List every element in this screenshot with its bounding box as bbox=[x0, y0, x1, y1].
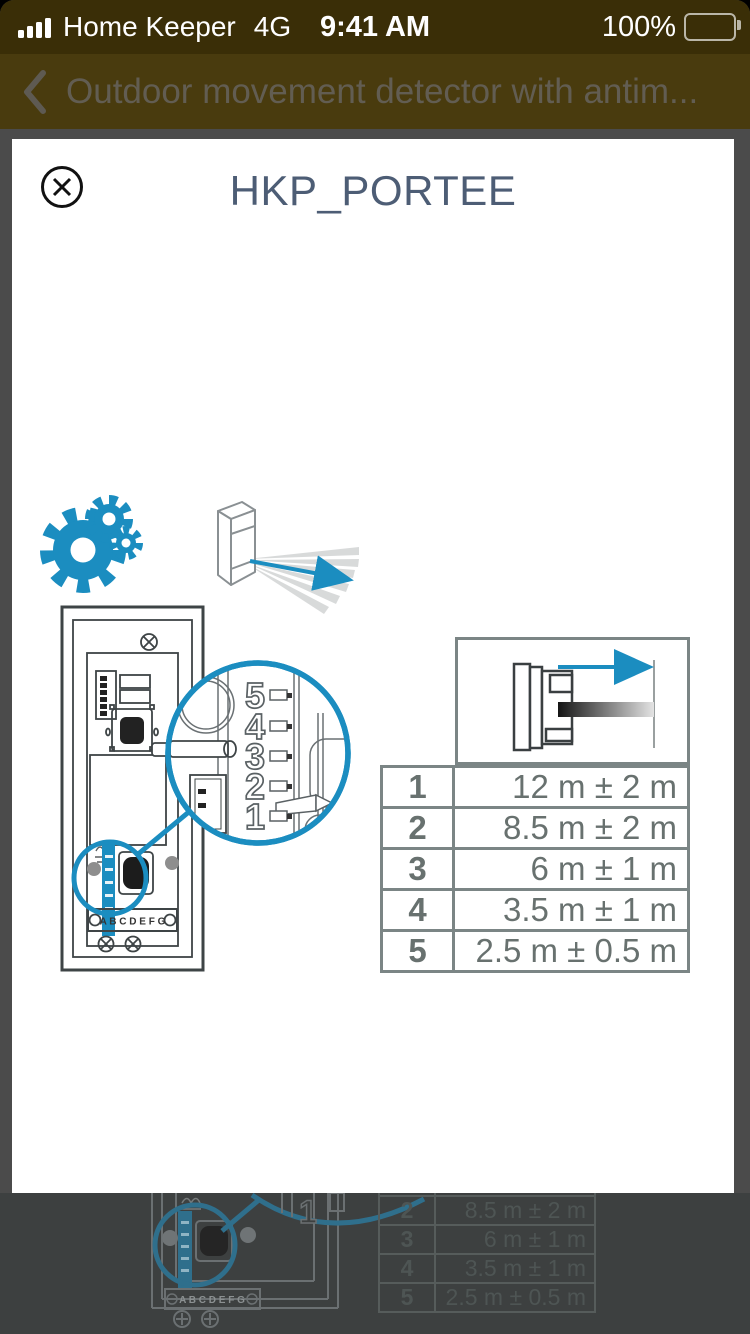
nav-bar: Outdoor movement detector with antim... bbox=[0, 54, 750, 129]
range-table-row: 28.5 m ± 2 m bbox=[379, 1196, 595, 1225]
range-table-row: 52.5 m ± 0.5 m bbox=[382, 931, 689, 972]
range-table-row: 43.5 m ± 1 m bbox=[382, 890, 689, 931]
range-table-row: 112 m ± 2 m bbox=[382, 767, 689, 808]
range-table-row: 36 m ± 1 m bbox=[379, 1225, 595, 1254]
detection-range-cell: 3.5 m ± 1 m bbox=[454, 890, 689, 931]
terminal-labels: A B C D E F G bbox=[100, 917, 166, 928]
switch-position-cell: 3 bbox=[382, 849, 454, 890]
detection-range-cell: 8.5 m ± 2 m bbox=[435, 1196, 595, 1225]
switch-position-cell: 2 bbox=[379, 1196, 435, 1225]
detector-beam-illustration bbox=[218, 502, 359, 614]
detection-range-cell: 12 m ± 2 m bbox=[454, 767, 689, 808]
range-table-row: 36 m ± 1 m bbox=[382, 849, 689, 890]
phone-screen: Home Keeper 4G 9:41 AM 100% Outdoor move… bbox=[0, 0, 750, 1334]
switch-position-cell: 5 bbox=[379, 1283, 435, 1312]
modal-title: HKP_PORTEE bbox=[12, 167, 734, 215]
nav-title: Outdoor movement detector with antim... bbox=[66, 72, 698, 112]
range-table-row: 43.5 m ± 1 m bbox=[379, 1254, 595, 1283]
detection-range-cell: 2.5 m ± 0.5 m bbox=[454, 931, 689, 972]
battery-percent-label: 100% bbox=[602, 11, 676, 44]
detection-range-cell: 2.5 m ± 0.5 m bbox=[435, 1283, 595, 1312]
range-table-row: 52.5 m ± 0.5 m bbox=[379, 1283, 595, 1312]
switch-position-cell: 2 bbox=[382, 808, 454, 849]
portee-setting-figure: A B C D E F G bbox=[12, 439, 734, 999]
range-diagram-box bbox=[455, 637, 690, 765]
dimmed-range-table: 112 m ± 2 m28.5 m ± 2 m36 m ± 1 m43.5 m … bbox=[378, 1193, 596, 1313]
battery-icon bbox=[684, 13, 736, 41]
magnifier-circle: 5 4 3 2 1 bbox=[168, 663, 380, 845]
dimmed-switch-scale-label: 1 bbox=[299, 1194, 317, 1230]
detection-range-cell: 6 m ± 1 m bbox=[435, 1225, 595, 1254]
svg-text:1: 1 bbox=[245, 796, 265, 837]
detection-range-cell: 6 m ± 1 m bbox=[454, 849, 689, 890]
back-chevron-icon[interactable] bbox=[22, 69, 48, 115]
switch-position-cell: 4 bbox=[379, 1254, 435, 1283]
dimmed-terminal-labels: A B C D E F G bbox=[179, 1295, 245, 1306]
switch-position-cell: 1 bbox=[382, 767, 454, 808]
device-setting-modal: HKP_PORTEE bbox=[12, 139, 734, 1193]
range-table-row: 28.5 m ± 2 m bbox=[382, 808, 689, 849]
switch-position-cell: 4 bbox=[382, 890, 454, 931]
switch-position-cell: 3 bbox=[379, 1225, 435, 1254]
dimmed-device-diagram: 1 A B C D E F G bbox=[0, 1193, 750, 1334]
beam-gradient-bar bbox=[558, 702, 654, 717]
settings-gears-icon bbox=[47, 500, 139, 586]
detection-range-cell: 8.5 m ± 2 m bbox=[454, 808, 689, 849]
status-bar: Home Keeper 4G 9:41 AM 100% bbox=[0, 0, 750, 54]
switch-scale-labels: 5 4 3 2 1 bbox=[245, 675, 265, 837]
switch-position-cell: 5 bbox=[382, 931, 454, 972]
detection-range-cell: 3.5 m ± 1 m bbox=[435, 1254, 595, 1283]
dimmed-background-page: 1 A B C D E F G 112 m ± 2 m28.5 m ± 2 m3… bbox=[0, 1193, 750, 1334]
range-table: 112 m ± 2 m28.5 m ± 2 m36 m ± 1 m43.5 m … bbox=[380, 765, 690, 973]
